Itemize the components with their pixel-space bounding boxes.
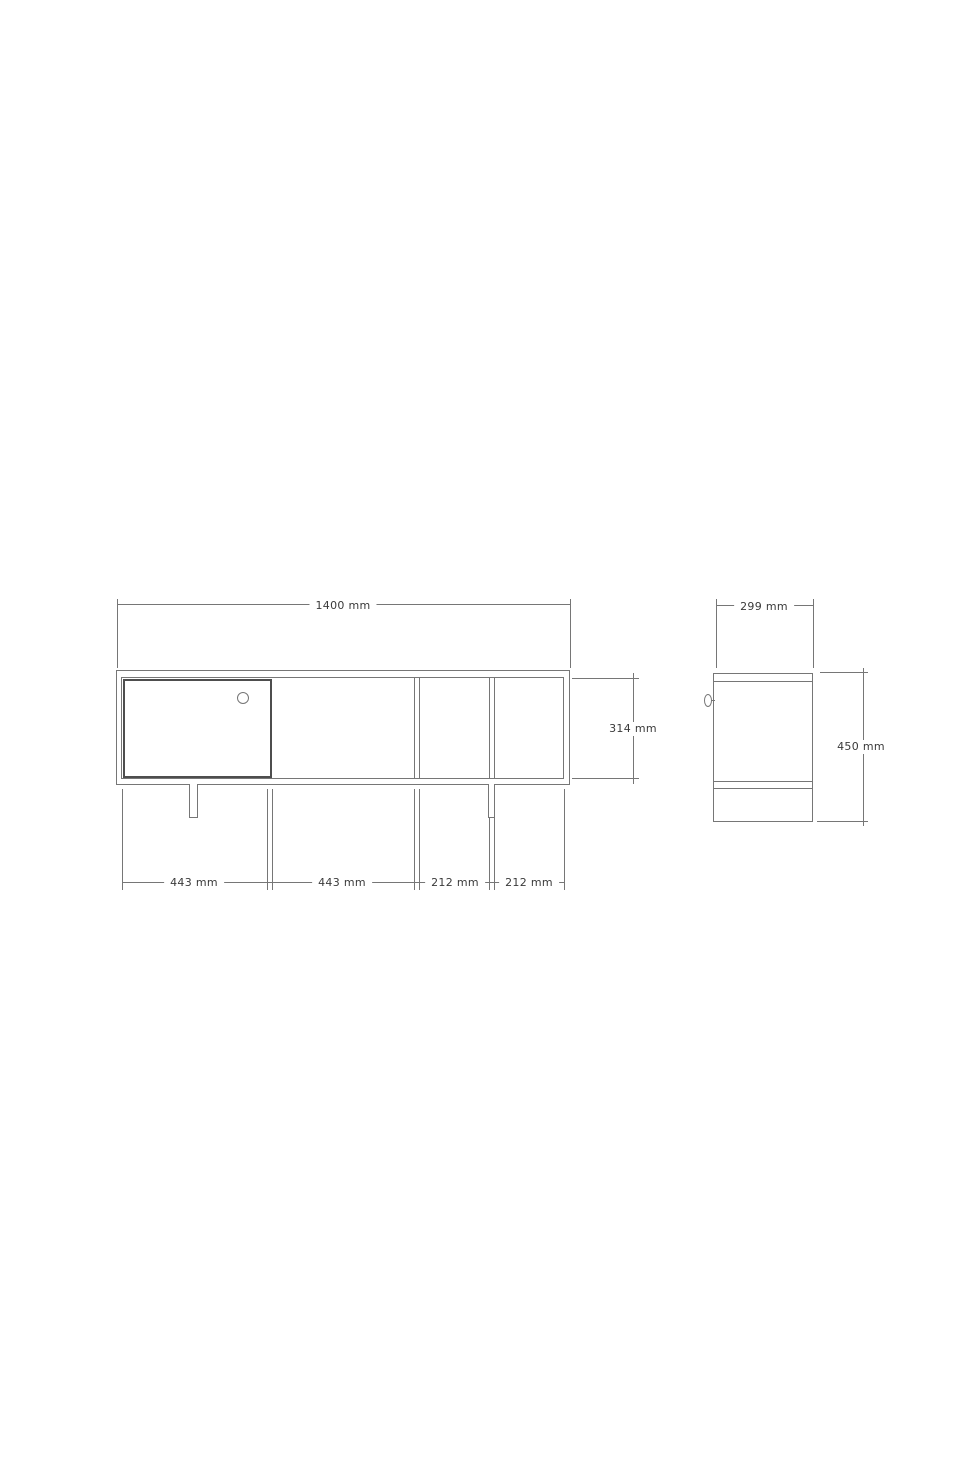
extension-line — [813, 599, 814, 668]
divider-panel-2 — [489, 678, 495, 779]
extension-line — [122, 789, 123, 890]
finger-hole-icon — [237, 692, 249, 704]
extension-line — [820, 672, 868, 673]
front-height-label: 314 mm — [603, 722, 663, 736]
extension-line — [564, 789, 565, 890]
extension-line — [817, 821, 868, 822]
side-outline — [713, 673, 813, 822]
extension-line — [716, 599, 717, 668]
extension-line — [570, 599, 571, 668]
divider-panel-1 — [414, 678, 420, 779]
front-width-label: 1400 mm — [309, 599, 376, 613]
extension-line — [572, 678, 639, 679]
side-plinth-line — [714, 788, 812, 789]
technical-drawing-canvas: 1400 mm 443 mm 443 mm 212 mm 212 mm 314 … — [0, 0, 970, 1462]
extension-line — [272, 789, 273, 890]
segment-4-label: 212 mm — [499, 876, 559, 890]
side-depth-label: 299 mm — [734, 600, 794, 614]
front-leg-left — [189, 784, 198, 818]
segment-3-label: 212 mm — [425, 876, 485, 890]
extension-line — [117, 599, 118, 668]
extension-line — [419, 789, 420, 890]
extension-line — [414, 789, 415, 890]
side-height-label: 450 mm — [831, 740, 891, 754]
side-bottom-panel-line — [714, 781, 812, 782]
door-panel — [123, 679, 272, 778]
door-knob-icon — [704, 694, 712, 707]
front-leg-right — [488, 784, 495, 818]
segment-1-label: 443 mm — [164, 876, 224, 890]
extension-line — [572, 778, 639, 779]
extension-line — [267, 789, 268, 890]
side-top-edge-line — [714, 681, 812, 682]
segment-2-label: 443 mm — [312, 876, 372, 890]
